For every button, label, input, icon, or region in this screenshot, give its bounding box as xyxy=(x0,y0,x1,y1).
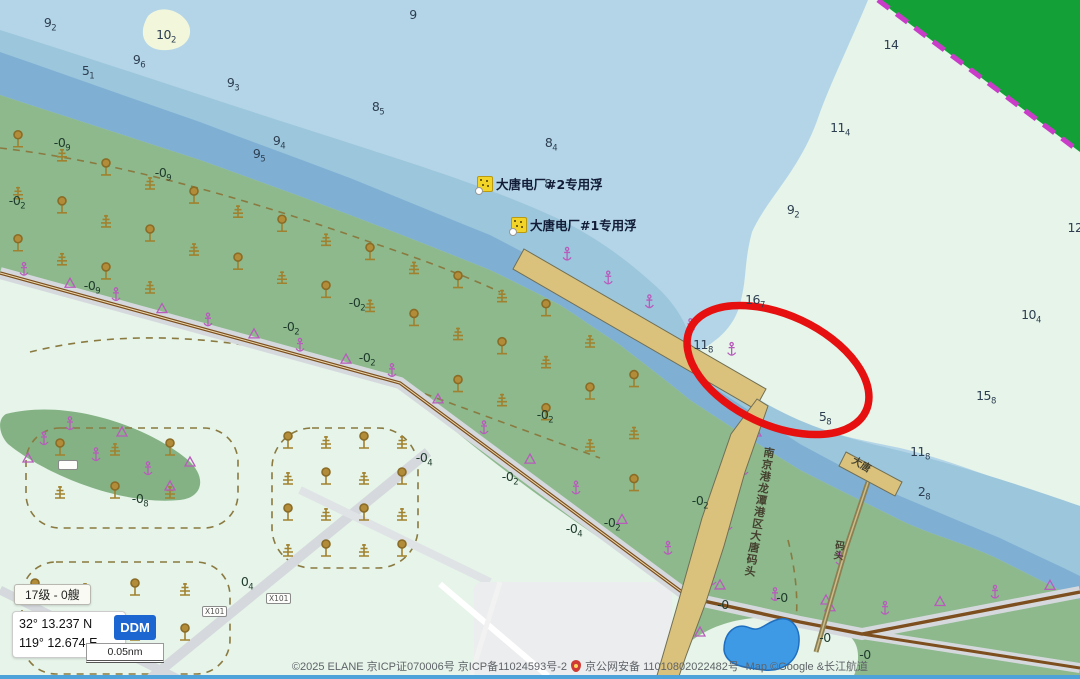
buoy-2: 大唐电厂#2专用浮 xyxy=(477,174,603,193)
road-sign-x101: X101 xyxy=(202,606,227,617)
police-badge-icon xyxy=(571,660,581,672)
copyright-left-text: ©2025 ELANE 京ICP证070006号 京ICP备11024593号-… xyxy=(292,661,567,673)
bottom-border-strip xyxy=(0,675,1080,679)
chart-viewer-window: 9210295196938594958481141492167104118158… xyxy=(0,0,1080,679)
special-buoy-icon xyxy=(511,217,527,233)
buoy-1: 大唐电厂#1专用浮 xyxy=(511,215,637,234)
copyright-right-text: 京公网安备 11010802022482号 -Map ©Google &长江航道 xyxy=(585,661,868,673)
special-buoy-icon xyxy=(477,176,493,192)
buoy-label: 大唐电厂#2专用浮 xyxy=(496,174,603,193)
buoy-label: 大唐电厂#1专用浮 xyxy=(530,215,637,234)
coordinate-format-button[interactable]: DDM xyxy=(114,615,156,640)
latitude-value: 32° 13.237 N xyxy=(19,615,119,634)
zoom-level-badge: 17级 - 0艘 xyxy=(14,584,91,605)
small-sign xyxy=(58,460,78,470)
copyright-bar: ©2025 ELANE 京ICP证070006号 京ICP备11024593号-… xyxy=(80,658,1080,674)
road-sign-x101-2: X101 xyxy=(266,593,291,604)
small-pier-label: 码头 xyxy=(829,539,847,561)
nautical-chart-canvas[interactable] xyxy=(0,0,1080,679)
